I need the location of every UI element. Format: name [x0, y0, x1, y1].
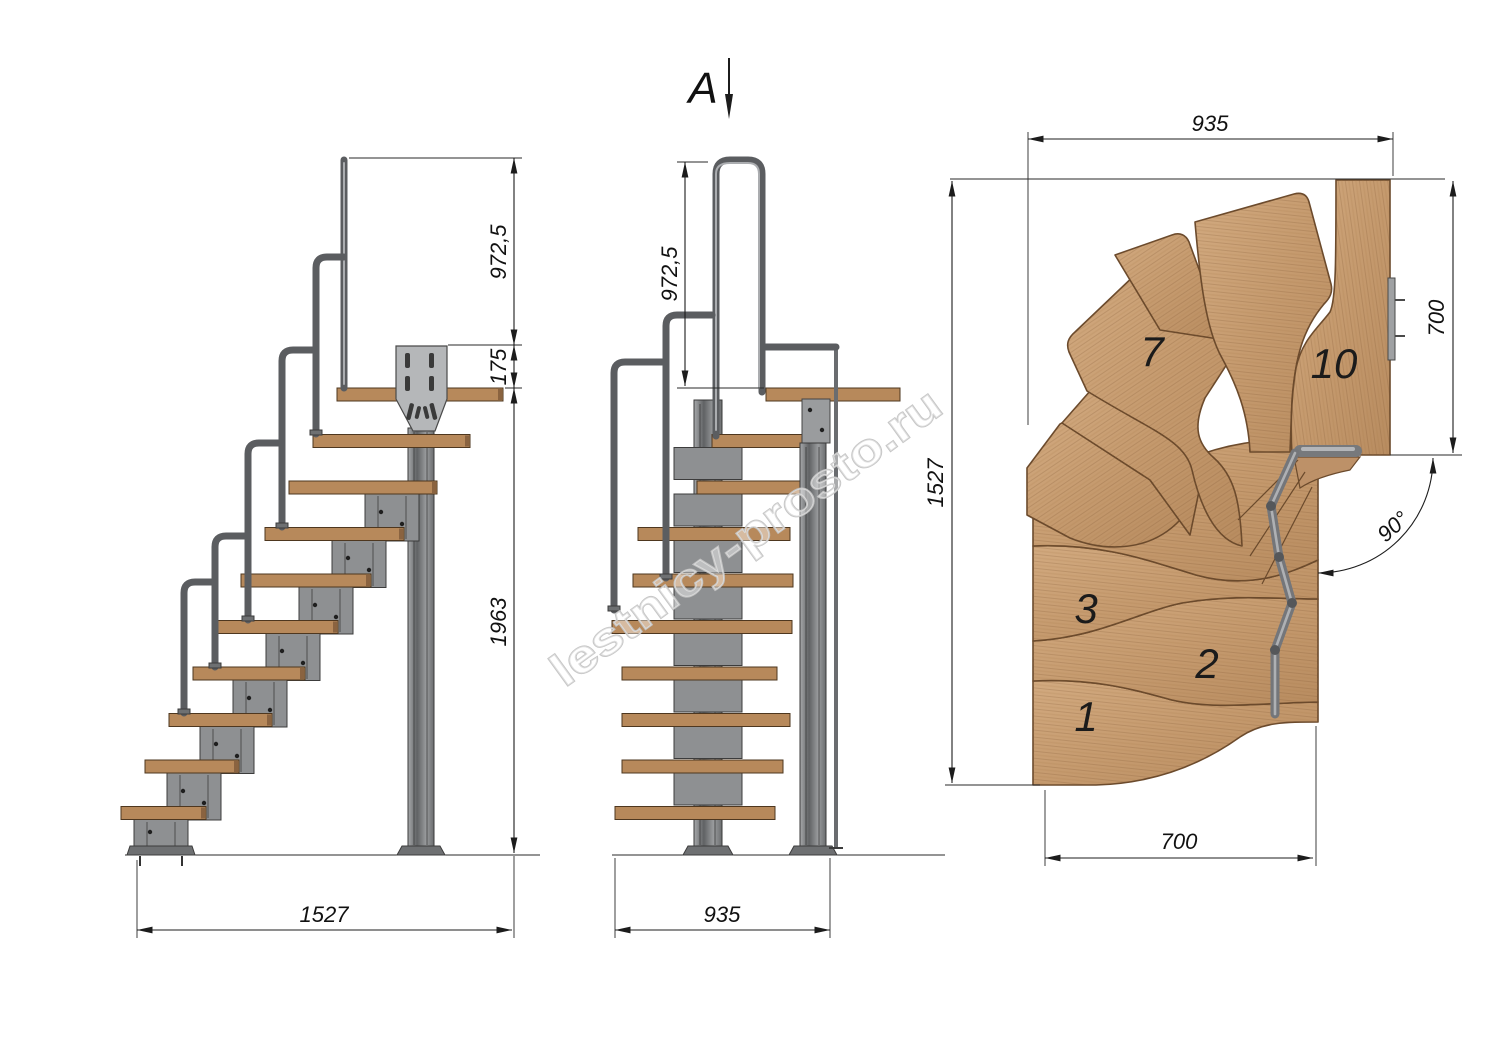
step-label-10: 10 [1311, 340, 1358, 387]
dim-plan-width-bottom: 700 [1161, 829, 1198, 854]
dim-front-width: 935 [704, 902, 741, 927]
dim-side-rail-height: 972,5 [486, 224, 511, 280]
front-wall-bracket [802, 399, 830, 443]
dim-side-riser: 175 [486, 348, 511, 385]
section-marker-label: A [685, 64, 717, 113]
dim-plan-exit-right: 700 [1424, 299, 1449, 336]
staircase-technical-drawing: A [0, 0, 1500, 1061]
side-elevation-view: 972,5 175 1963 1527 [121, 158, 540, 938]
dim-plan-depth-left: 1527 [923, 458, 948, 508]
front-elevation-view: 972,5 935 [608, 160, 945, 938]
section-marker-a: A [685, 58, 733, 119]
section-arrow-head [725, 94, 733, 119]
plan-view: 1 2 3 7 10 935 1527 700 700 90° [923, 111, 1462, 866]
plan-wall-bracket [1388, 278, 1405, 360]
dim-plan-width-top: 935 [1192, 111, 1229, 136]
side-mounting-plate [396, 346, 447, 431]
watermark-text: lestnicy-prosto.ru [540, 378, 951, 696]
front-wall-post [829, 347, 843, 848]
side-dimensions: 972,5 175 1963 1527 [137, 158, 522, 938]
step-label-1: 1 [1074, 693, 1097, 740]
step-label-7: 7 [1140, 328, 1165, 375]
dim-plan-turn-angle: 90° [1372, 506, 1414, 547]
dim-side-length: 1527 [300, 902, 350, 927]
dim-front-rail-height: 972,5 [657, 246, 682, 302]
dim-side-total-height: 1963 [486, 597, 511, 647]
drawing-canvas: A [0, 0, 1500, 1061]
step-label-3: 3 [1074, 585, 1097, 632]
step-label-2: 2 [1194, 640, 1218, 687]
